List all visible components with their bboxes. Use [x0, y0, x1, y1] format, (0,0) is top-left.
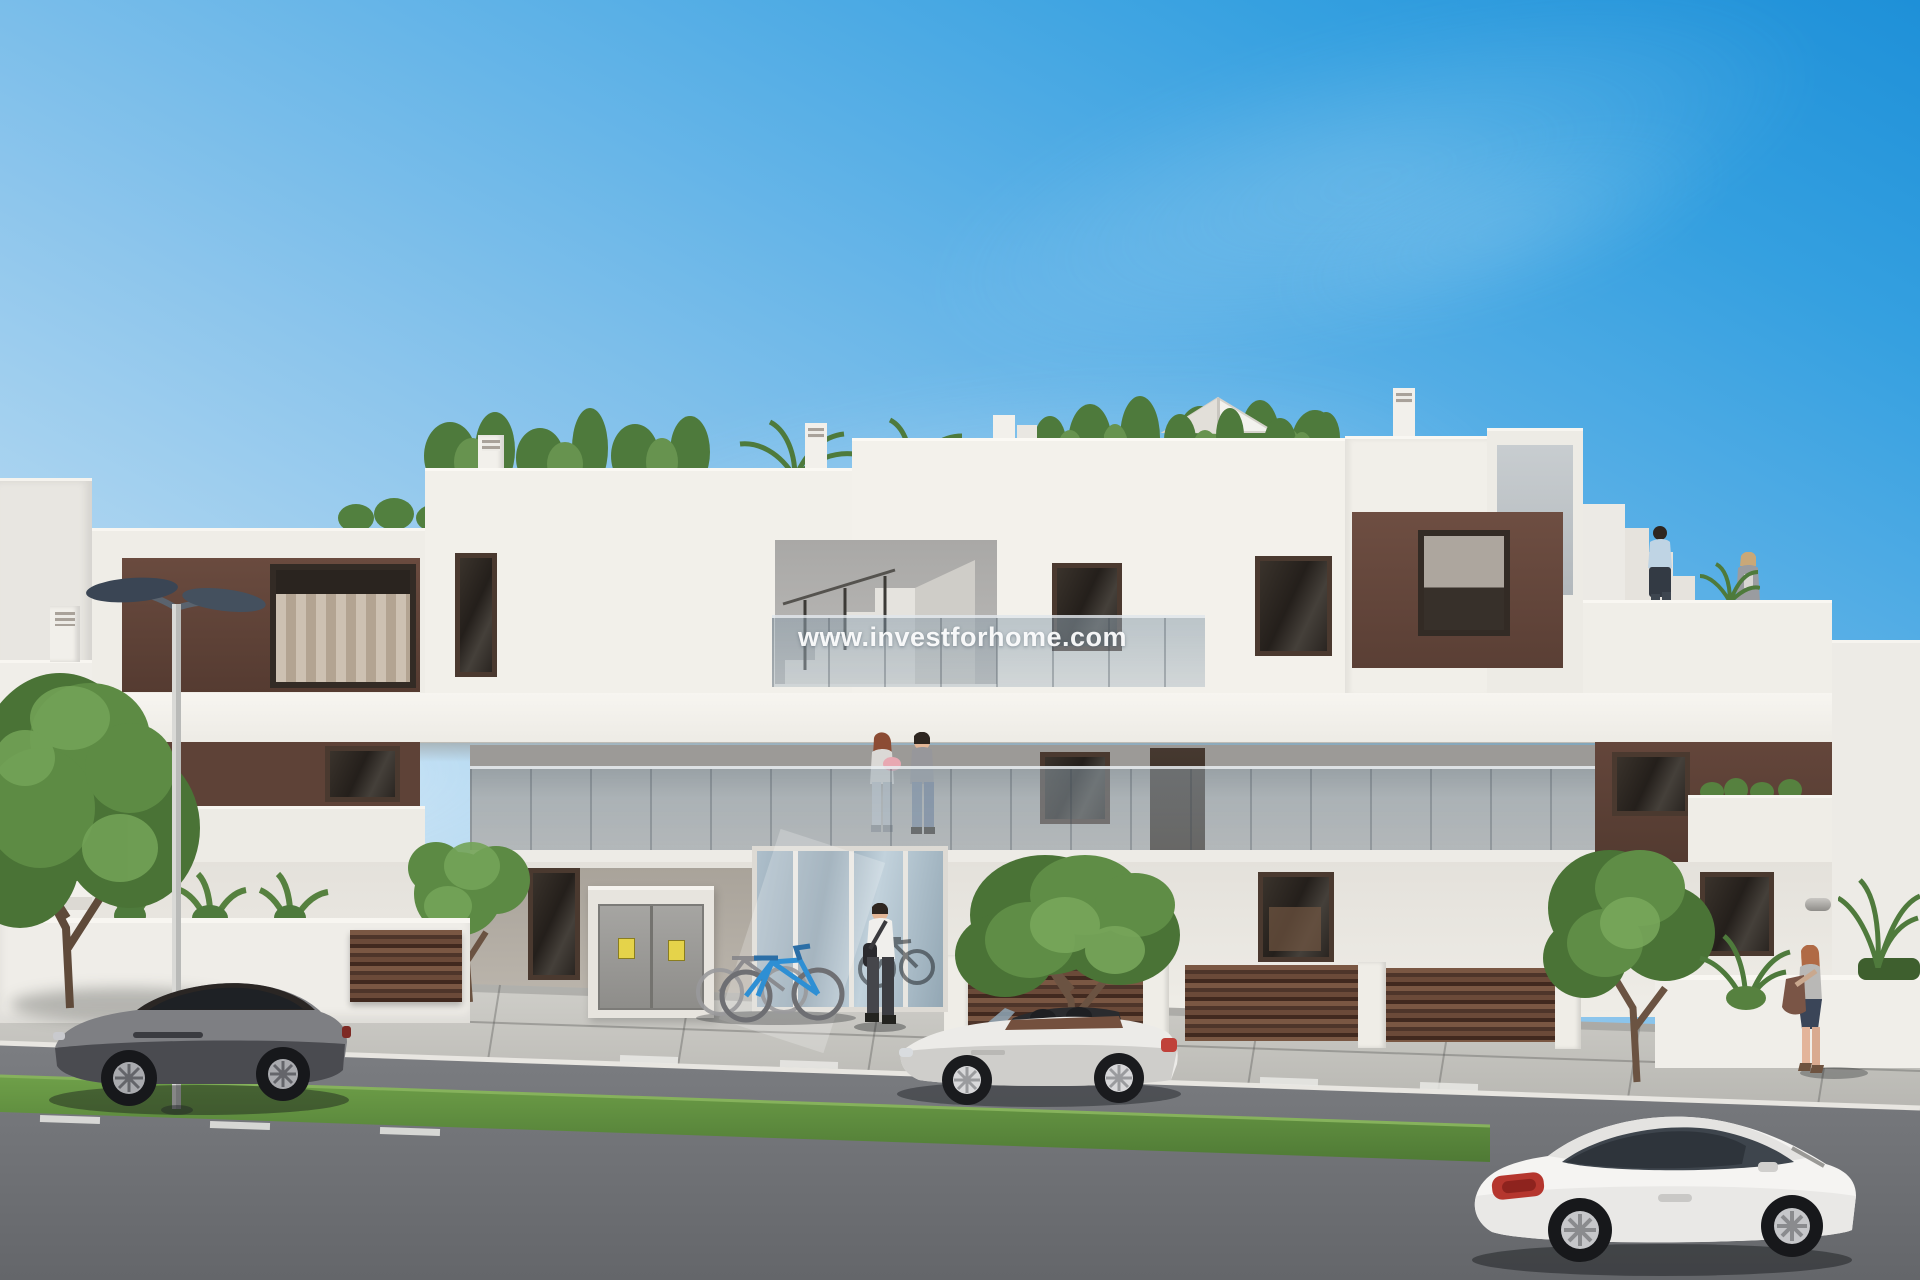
slat-fence — [1185, 965, 1358, 1041]
window-left-wing — [325, 746, 400, 802]
wheel — [256, 1047, 310, 1101]
white-coupe-car — [1462, 1078, 1864, 1280]
roof-terrace-man — [1634, 524, 1690, 604]
architectural-render-scene: www.investforhome.com — [0, 0, 1920, 1280]
warning-sticker — [668, 940, 685, 961]
wheel — [1548, 1198, 1612, 1262]
wheel — [942, 1055, 992, 1105]
window-curtained — [270, 564, 416, 688]
window-right-wing — [1612, 752, 1690, 816]
window-narrow — [455, 553, 497, 677]
chimney — [805, 423, 827, 469]
fence-pillar — [1358, 962, 1386, 1048]
floor-slab — [92, 693, 1832, 743]
grey-coupe-car — [45, 948, 353, 1126]
roof-terrace-parapet — [1583, 600, 1832, 696]
bicycles — [688, 918, 863, 1026]
wall-lamp — [1805, 898, 1831, 911]
window-blinds — [1418, 530, 1510, 636]
wheel — [101, 1050, 157, 1106]
chimney — [1393, 388, 1415, 436]
silver-convertible-car — [893, 972, 1185, 1114]
sidewalk-woman — [1776, 945, 1876, 1080]
tree-right-large — [1525, 828, 1720, 1086]
window-upper — [1255, 556, 1332, 656]
slat-gate-left — [350, 930, 462, 1002]
warning-sticker — [618, 938, 635, 959]
wheel — [1094, 1053, 1144, 1103]
wheel — [1761, 1195, 1823, 1257]
watermark-text: www.investforhome.com — [798, 622, 1118, 653]
entrance-man — [850, 903, 912, 1033]
roof-terrace-palm — [1700, 560, 1760, 602]
